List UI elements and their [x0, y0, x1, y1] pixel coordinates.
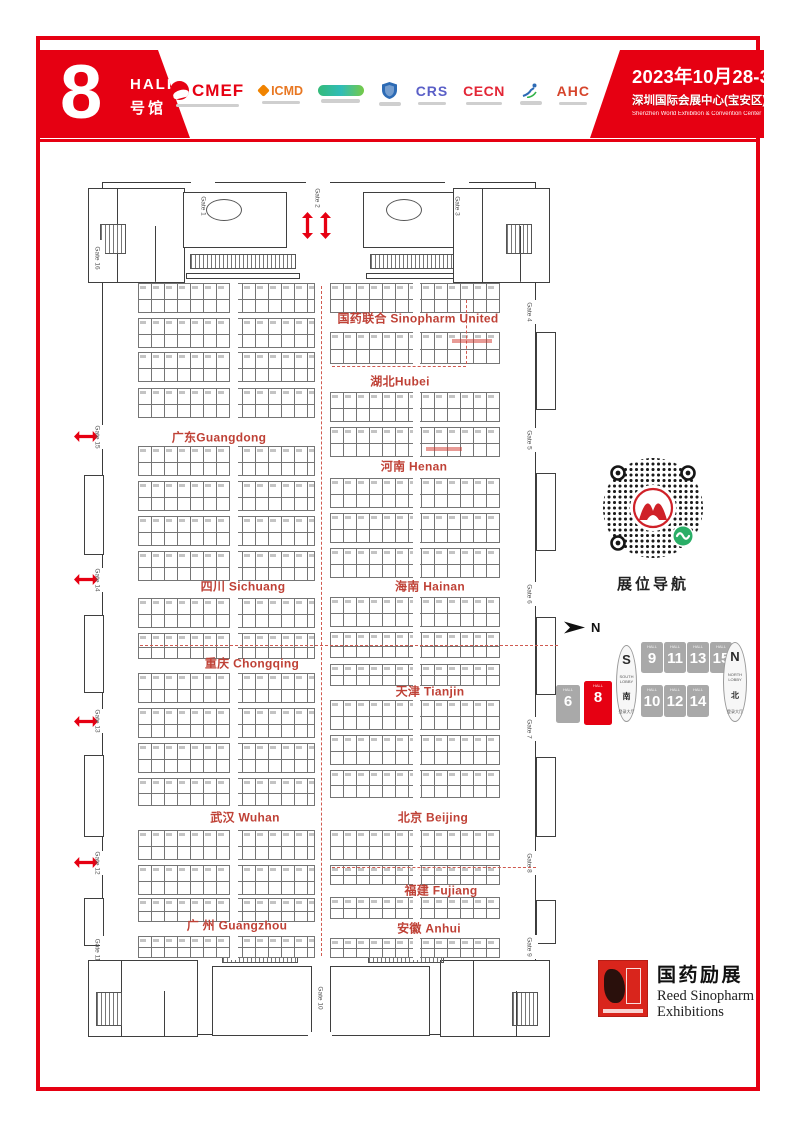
crs-logo: CRS: [416, 83, 449, 106]
gate-label-16: Gate 16: [94, 246, 101, 269]
gate-label-2: Gate 2: [314, 188, 321, 208]
region-label-tianjin: 天津 Tianjin: [396, 683, 465, 700]
venue-name-en: Shenzhen World Exhibition & Convention C…: [632, 111, 756, 117]
region-label-sichuan: 四川 Sichuang: [201, 578, 286, 595]
qr-label: 展位导航: [600, 573, 706, 594]
vestibule: [536, 332, 556, 410]
cecn-wordmark: CECN: [463, 83, 505, 99]
vestibule: [84, 755, 104, 837]
gate-opening: [308, 1032, 332, 1037]
icmd-logo: ICMD: [259, 84, 303, 105]
region-label-beijing: 北京 Beijing: [398, 809, 468, 826]
counter-block: [186, 273, 300, 279]
booth-block: [138, 673, 315, 703]
logo-caption-bar: [418, 102, 446, 106]
region-label-henan: 河南 Henan: [381, 458, 447, 475]
venue-name-cn: 深圳国际会展中心(宝安区): [632, 92, 756, 108]
logo-caption-bar: [262, 101, 299, 105]
gate-label-9: Gate 9: [526, 937, 533, 957]
logo-caption-bar: [379, 102, 401, 106]
gate-label-12: Gate 12: [94, 851, 101, 874]
sports-medical-logo: [520, 83, 542, 105]
crs-wordmark: CRS: [416, 83, 449, 99]
vestibule: [84, 615, 104, 693]
booth-block: [138, 283, 315, 313]
gate-label-7: Gate 7: [526, 719, 533, 739]
region-label-sinopharm: 国药联合 Sinopharm United: [338, 310, 499, 327]
region-label-hainan: 海南 Hainan: [395, 578, 465, 595]
gate-opening: [100, 851, 105, 875]
facility-oval: [386, 199, 422, 221]
header-divider-rule: [40, 139, 760, 142]
gate-opening: [533, 851, 538, 875]
event-banner: 2023年10月28-31日 深圳国际会展中心(宝安区) Shenzhen Wo…: [590, 50, 764, 138]
organizer-name-cn: 国药励展: [657, 960, 754, 987]
region-label-guangdong: 广东Guangdong: [172, 429, 267, 446]
gate-label-10: Gate 10: [317, 986, 324, 1009]
booth-block: [138, 936, 315, 958]
minimap-hall-8-current: HALL 8: [584, 681, 612, 725]
gate-opening: [533, 428, 538, 452]
minimap-south-lobby: S SOUTH LOBBY 南 登录大厅: [616, 645, 637, 722]
booth-block: [138, 352, 315, 382]
compass-north-label: N: [591, 620, 600, 635]
vestibule: [536, 757, 556, 837]
logo-caption-bar: [520, 101, 542, 105]
aisle: [230, 281, 238, 960]
ahc-logo: AHC: [557, 83, 590, 106]
booth-block: [138, 830, 315, 860]
minimap-north-lobby: N NORTH LOBBY 北 登录大厅: [723, 642, 747, 722]
shield-icon: [382, 82, 397, 99]
booth-block: [138, 388, 315, 418]
gate-opening: [533, 935, 538, 959]
minimap-hall-12: HALL 12: [664, 685, 686, 717]
gate-opening: [100, 709, 105, 733]
stairs-block: [96, 992, 122, 1026]
gate-opening: [100, 240, 105, 264]
runner-icon: [521, 83, 541, 98]
cmef-emblem-icon: [170, 81, 189, 100]
gate-label-4: Gate 4: [526, 302, 533, 322]
stairs-block: [506, 224, 532, 254]
minimap-hall-14: HALL 14: [687, 685, 709, 717]
minimap-hall-13: HALL 13: [687, 642, 709, 673]
vestibule: [84, 475, 104, 555]
gate-opening: [306, 180, 330, 185]
region-label-fujian: 福建 Fujiang: [405, 882, 478, 899]
facility-oval: [206, 199, 242, 221]
shield-brand-logo: [379, 82, 401, 106]
gate-label-6: Gate 6: [526, 584, 533, 604]
gate-opening: [100, 425, 105, 449]
corner-room: [453, 188, 550, 283]
gate-label-14: Gate 14: [94, 568, 101, 591]
minimap-hall-11: HALL 11: [664, 642, 686, 673]
region-label-hubei: 湖北Hubei: [370, 373, 429, 390]
region-label-guangzhou: 广 州 Guangzhou: [187, 917, 288, 934]
vestibule: [536, 900, 556, 944]
region-boundary-dash: [140, 645, 558, 646]
gate-opening: [533, 300, 538, 324]
minimap-hall-6: HALL 6: [556, 685, 580, 723]
region-boundary-dash: [332, 867, 536, 868]
minimap-hall-10: HALL 10: [641, 685, 663, 717]
gate-opening: [533, 582, 538, 606]
hall-label-cn: 号馆: [130, 97, 166, 118]
exhibition-floorplan-poster: 8 HALL 号馆 CMEF ICMD CRS: [0, 0, 800, 1131]
gate-label-1: Gate 1: [200, 196, 207, 216]
booth-navigation-block: 展位导航: [600, 456, 706, 594]
reed-sinopharm-seal-icon: [598, 960, 648, 1017]
logo-caption-bar: [321, 99, 360, 103]
cmef-emblem-icon: [634, 489, 672, 527]
logo-caption-bar: [176, 104, 239, 108]
stairs-block: [512, 992, 538, 1026]
gate-opening: [100, 936, 105, 960]
icmd-emblem-icon: [257, 84, 270, 97]
booth-block: [138, 708, 315, 738]
region-boundary-dash: [321, 286, 322, 956]
minimap-hall-9: HALL 9: [641, 642, 663, 673]
facility-room: [212, 966, 312, 1036]
ahc-wordmark: AHC: [557, 83, 590, 99]
vestibule: [536, 617, 556, 695]
region-boundary-dash: [332, 366, 466, 367]
cecn-logo: CECN: [463, 83, 505, 106]
health-brand-logo: [318, 85, 364, 103]
compass-arrow-icon: [563, 620, 587, 635]
escalator-block: [190, 254, 296, 269]
booth-block: [138, 598, 315, 628]
logo-caption-bar: [466, 102, 501, 106]
gate-label-11: Gate 11: [94, 939, 101, 962]
cmef-wordmark: CMEF: [192, 81, 244, 101]
facility-room: [330, 966, 430, 1036]
gate-opening: [100, 568, 105, 592]
highlighted-booths: [452, 339, 492, 343]
gate-label-13: Gate 13: [94, 709, 101, 732]
logo-caption-bar: [559, 102, 587, 106]
vestibule: [536, 473, 556, 551]
qr-code: [601, 456, 705, 560]
organizer-brand: 国药励展 Reed Sinopharm Exhibitions: [598, 960, 754, 1020]
gate-label-5: Gate 5: [526, 430, 533, 450]
booth-block: [138, 865, 315, 895]
gate-label-3: Gate 3: [454, 196, 461, 216]
gate-opening: [445, 180, 469, 185]
region-label-chongqing: 重庆 Chongqing: [205, 655, 299, 672]
booth-block: [138, 551, 315, 581]
compass: N: [563, 620, 600, 635]
event-date: 2023年10月28-31日: [632, 63, 756, 89]
partner-logos-strip: CMEF ICMD CRS CECN: [166, 60, 594, 128]
gate-label-15: Gate 15: [94, 425, 101, 448]
highlighted-booths: [426, 447, 462, 451]
cmef-logo: CMEF: [170, 81, 244, 108]
booth-block: [138, 743, 315, 773]
gate-label-8: Gate 8: [526, 853, 533, 873]
booth-block: [138, 481, 315, 511]
gate-opening: [191, 180, 215, 185]
hall-number: 8: [60, 46, 102, 140]
booth-block: [138, 516, 315, 546]
region-label-anhui: 安徽 Anhui: [397, 920, 461, 937]
booth-block: [138, 778, 315, 806]
gate-opening: [533, 717, 538, 741]
booth-block: [138, 318, 315, 348]
booth-block: [138, 446, 315, 476]
organizer-name-en: Reed Sinopharm Exhibitions: [657, 989, 754, 1020]
health-wordmark-icon: [318, 85, 364, 96]
icmd-wordmark: ICMD: [271, 84, 303, 98]
region-label-wuhan: 武汉 Wuhan: [210, 809, 280, 826]
